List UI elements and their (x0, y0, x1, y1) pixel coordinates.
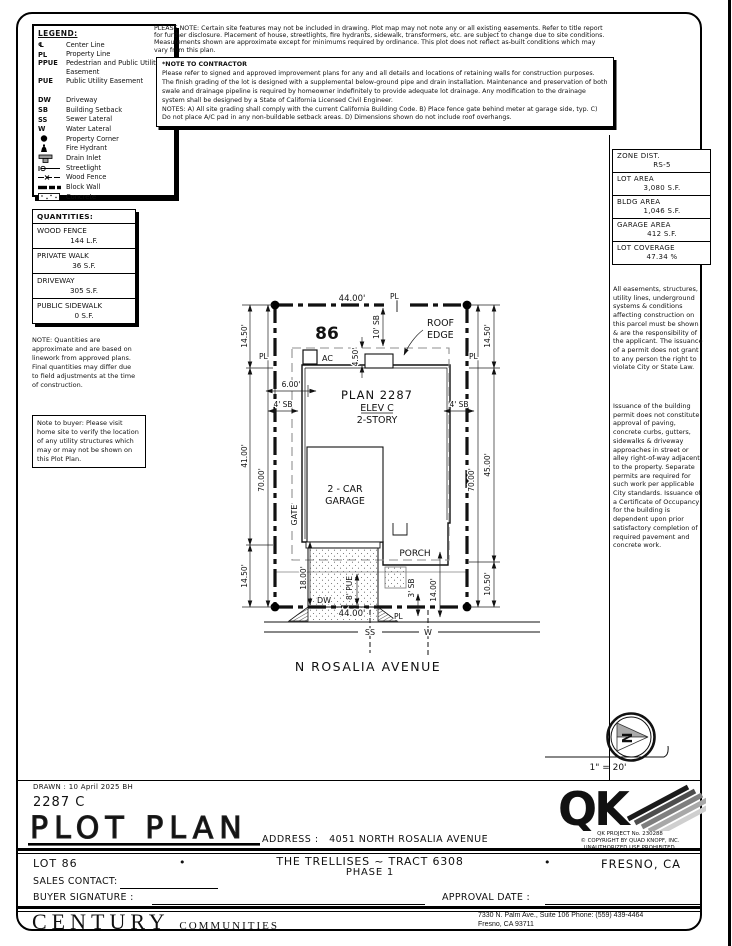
svg-text:8' PUE: 8' PUE (345, 576, 354, 600)
public-sidewalk-qty: PUBLIC SIDEWALK0 S.F. (33, 299, 135, 323)
quantities-title: QUANTITIES: (33, 210, 135, 224)
contractor-note-p1: Please refer to signed and approved impr… (162, 70, 608, 79)
garage-area-cell: GARAGE AREA412 S.F. (613, 219, 710, 242)
svg-text:45.00': 45.00' (483, 453, 492, 477)
separator-bullet: • (179, 856, 186, 869)
page-edge-line (728, 0, 731, 946)
svg-text:PL: PL (390, 292, 400, 301)
concrete-icon (38, 192, 66, 202)
svg-text:EDGE: EDGE (427, 330, 454, 341)
svg-text:2 - CAR: 2 - CAR (327, 484, 363, 495)
svg-text:10' SB: 10' SB (372, 315, 381, 339)
builder-address: 7330 N. Palm Ave., Suite 106 Phone: (559… (478, 912, 702, 929)
plan-number: 2287 C (33, 795, 85, 810)
ac-pad (303, 350, 317, 364)
svg-text:44.00': 44.00' (339, 609, 366, 619)
svg-text:PLAN 2287: PLAN 2287 (341, 388, 413, 402)
streetlight-icon (38, 164, 66, 173)
legend-item-driveway: DWDriveway (38, 95, 170, 105)
legend-item-centerline: ℄Center Line (38, 40, 170, 50)
svg-text:6.00': 6.00' (282, 380, 301, 389)
svg-text:14.50': 14.50' (240, 564, 249, 588)
legend-item-wood-fence: Wood Fence (38, 173, 170, 183)
address-label: ADDRESS : (262, 834, 319, 845)
private-walk-pad (385, 567, 406, 588)
legend-item-fire-hydrant: Fire Hydrant (38, 144, 170, 154)
svg-text:GATE: GATE (290, 505, 299, 526)
builder-logo: CENTURY COMMUNITIES (32, 909, 279, 935)
legend-item-water: WWater Lateral (38, 124, 170, 134)
driveway-qty: DRIVEWAY305 S.F. (33, 274, 135, 299)
svg-text:44.00': 44.00' (339, 294, 366, 304)
buyer-signature-line[interactable] (152, 904, 425, 905)
qk-copyright: © COPYRIGHT BY QUAD KNOPF, INC. (552, 838, 708, 845)
fire-hydrant-icon (38, 144, 66, 153)
lot-coverage-cell: LOT COVERAGE47.34 % (613, 242, 710, 264)
legend-item-streetlight: Streetlight (38, 163, 170, 173)
qk-project-number: QK PROJECT No. 230288 (552, 831, 708, 838)
please-note-paragraph: PLEASE NOTE: Certain site features may n… (154, 25, 606, 54)
svg-text:86: 86 (315, 324, 339, 344)
contractor-note-title: *NOTE TO CONTRACTOR (162, 61, 608, 70)
separator-bullet: • (544, 856, 551, 869)
bldg-area-cell: BLDG AREA1,046 S.F. (613, 196, 710, 219)
qk-logo: QK (556, 779, 706, 831)
builder-name: CENTURY (32, 909, 169, 934)
legend-item-ppue: PPUEPedestrian and Public Utility Easeme… (38, 59, 170, 77)
drain-inlet-icon (38, 153, 66, 163)
note-to-contractor-box: *NOTE TO CONTRACTOR Please refer to sign… (156, 57, 614, 127)
house-footprint (302, 350, 450, 565)
sales-contact-line[interactable] (120, 888, 218, 889)
zoning-table: ZONE DIST.RS-5 LOT AREA3,080 S.F. BLDG A… (612, 149, 711, 265)
wood-fence-icon (38, 173, 66, 182)
legend-title: LEGEND: (38, 29, 170, 38)
svg-text:GARAGE: GARAGE (325, 496, 365, 507)
note-to-buyer-box: Note to buyer: Please visit home site to… (32, 415, 146, 468)
svg-text:18.00': 18.00' (299, 566, 308, 590)
phase-label: PHASE 1 (230, 867, 510, 878)
contractor-note-p2: The finish grading of the lot is designe… (162, 79, 608, 106)
address-value: 4051 NORTH ROSALIA AVENUE (329, 834, 488, 845)
svg-text:AC: AC (322, 354, 333, 363)
svg-text:PORCH: PORCH (399, 549, 430, 559)
legend-item-sewer: SSSewer Lateral (38, 115, 170, 125)
wood-fence-qty: WOOD FENCE144 L.F. (33, 224, 135, 249)
plot-plan-title: PLOT PLAN (28, 810, 268, 850)
property-corner-icon (38, 134, 66, 143)
block-wall-icon (38, 183, 66, 192)
svg-text:SS: SS (365, 628, 375, 637)
legend-item-setback: SBBuilding Setback (38, 105, 170, 115)
zone-district-cell: ZONE DIST.RS-5 (613, 150, 710, 173)
lot-number-label: LOT 86 (33, 857, 78, 870)
svg-text:70.00': 70.00' (257, 468, 266, 492)
legend-item-pue: PUEPublic Utility Easement (38, 77, 170, 95)
easements-note: All easements, structures, utility lines… (613, 285, 705, 372)
svg-text:3' SB: 3' SB (407, 578, 416, 597)
lot-area-cell: LOT AREA3,080 S.F. (613, 173, 710, 196)
svg-text:ROOF: ROOF (427, 318, 454, 329)
svg-text:41.00': 41.00' (240, 444, 249, 468)
svg-text:10.50': 10.50' (483, 572, 492, 596)
svg-text:DW: DW (317, 596, 331, 605)
svg-text:14.50': 14.50' (483, 324, 492, 348)
driveway-flare-left (289, 607, 308, 621)
plot-plan-sheet: LEGEND: ℄Center Line PLProperty Line PPU… (0, 0, 732, 946)
legend-item-property-corner: Property Corner (38, 134, 170, 144)
svg-text:4' SB: 4' SB (449, 400, 468, 409)
svg-text:PL: PL (259, 352, 269, 361)
scale-label: 1" = 20' (589, 763, 626, 773)
address-line: ADDRESS : 4051 NORTH ROSALIA AVENUE (262, 834, 488, 845)
buyer-signature-label: BUYER SIGNATURE : (33, 892, 134, 903)
legend-item-block-wall: Block Wall (38, 183, 170, 193)
quantities-note: NOTE: Quantities are approximate and are… (32, 336, 138, 390)
double-rule-top (17, 848, 701, 851)
north-arrow: N 1" = 20' (540, 688, 715, 783)
svg-text:14.50': 14.50' (240, 324, 249, 348)
street-name: N ROSALIA AVENUE (295, 659, 441, 674)
svg-text:4' SB: 4' SB (273, 400, 292, 409)
sales-contact-label: SALES CONTACT: (33, 876, 117, 887)
drawn-by: DRAWN : 10 April 2025 BH (33, 783, 133, 791)
centerline-symbol: ℄ (38, 41, 66, 49)
double-rule-top-thin (17, 853, 701, 854)
svg-text:ELEV C: ELEV C (360, 403, 394, 414)
contractor-note-p3: NOTES: A) All site grading shall comply … (162, 106, 608, 124)
city-label: FRESNO, CA (601, 857, 681, 871)
roof-edge-leader (404, 330, 423, 355)
svg-text:PL: PL (394, 612, 404, 621)
svg-text:QK: QK (558, 782, 632, 831)
permit-note: Issuance of the building permit does not… (613, 402, 705, 550)
builder-suffix: COMMUNITIES (179, 920, 279, 932)
svg-text:N: N (618, 733, 633, 744)
quantities-table: QUANTITIES: WOOD FENCE144 L.F. PRIVATE W… (32, 209, 136, 324)
approval-date-label: APPROVAL DATE : (442, 892, 530, 903)
legend-item-concrete: Concrete (38, 192, 170, 202)
svg-text:14.00': 14.00' (429, 578, 438, 602)
svg-text:4.50': 4.50' (351, 348, 360, 367)
approval-date-line[interactable] (545, 904, 700, 905)
svg-text:PL: PL (469, 352, 479, 361)
private-walk-qty: PRIVATE WALK36 S.F. (33, 249, 135, 274)
svg-text:2-STORY: 2-STORY (357, 415, 398, 426)
legend-item-drain-inlet: Drain Inlet (38, 154, 170, 164)
roof-bump (365, 354, 393, 368)
svg-text:70.00': 70.00' (467, 468, 476, 492)
svg-text:PLOT PLAN: PLOT PLAN (30, 811, 248, 846)
svg-text:W: W (424, 628, 432, 637)
legend-item-property-line: PLProperty Line (38, 50, 170, 60)
plot-drawing: 86 44.00' PL PL PL PL 44.00' 10' SB ROOF… (230, 275, 610, 705)
